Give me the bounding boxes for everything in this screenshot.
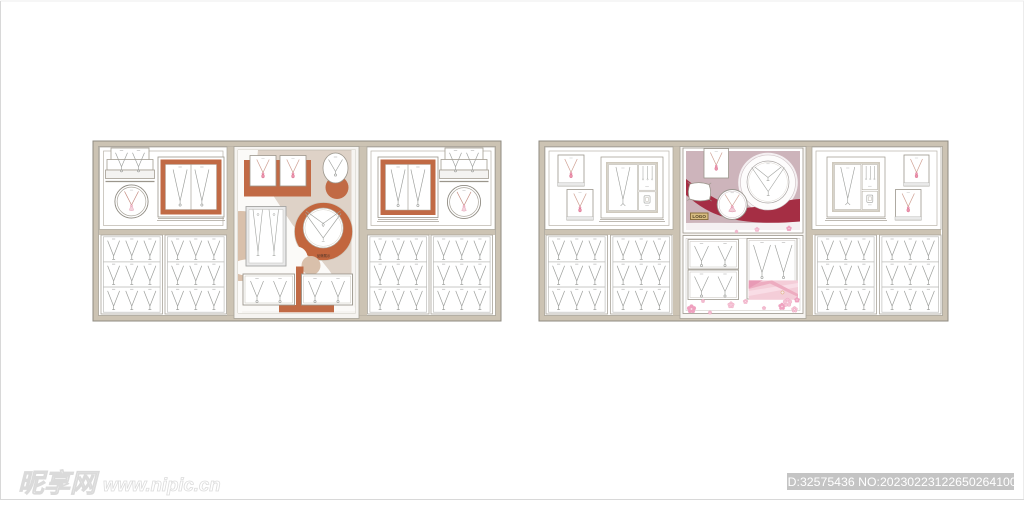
svg-text:ID:32575436 NO:202302231226502: ID:32575436 NO:20230223122650264100 [784,475,1017,489]
svg-text:www.nipic.cn: www.nipic.cn [103,474,221,495]
svg-text:LOGO: LOGO [692,214,706,219]
svg-text:昵享网: 昵享网 [18,468,100,498]
svg-text:品牌展示: 品牌展示 [317,253,331,258]
